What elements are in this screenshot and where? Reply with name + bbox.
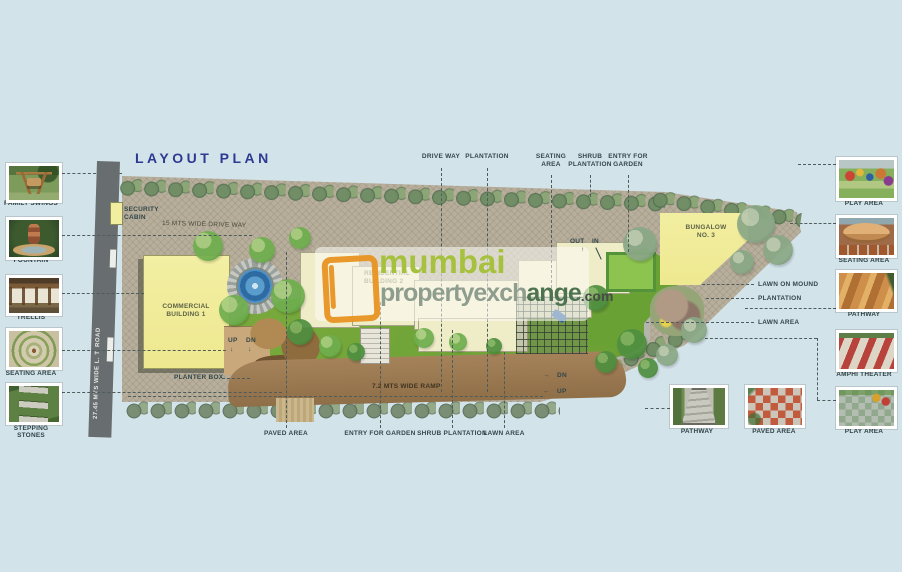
leader-line xyxy=(646,322,754,323)
seating-area-photo xyxy=(839,218,894,255)
residential-building-2 xyxy=(418,318,528,352)
thumbnail-pathway xyxy=(836,270,897,312)
tree xyxy=(763,235,793,265)
leader-line xyxy=(700,338,817,339)
thumbnail-label: PLAY AREA xyxy=(832,201,896,208)
leader-line xyxy=(128,396,543,397)
ramp-dn-label: DN xyxy=(246,337,256,345)
leader-line xyxy=(817,400,836,401)
thumbnail-seating-area-right xyxy=(836,215,897,258)
seating-area-photo xyxy=(9,331,59,367)
in-label: IN xyxy=(592,238,599,246)
tree xyxy=(730,250,754,274)
arrow-down-icon: ↓ xyxy=(248,346,252,354)
tree xyxy=(638,358,658,378)
leader-line xyxy=(504,352,505,428)
tree xyxy=(287,319,313,345)
leader-line xyxy=(62,293,144,294)
brand-word-mumbai: mumbai xyxy=(379,243,506,281)
thumbnail-seating-area xyxy=(6,328,62,370)
tree xyxy=(219,295,249,325)
thumbnail-label: PLAY AREA xyxy=(832,429,896,436)
tree xyxy=(414,328,434,348)
thumbnail-pathway-bottom xyxy=(670,385,728,428)
entrance-steps xyxy=(360,328,390,364)
tree xyxy=(486,338,502,354)
brand-word-part1: propertyexch xyxy=(380,279,526,307)
pathway-photo xyxy=(839,273,894,309)
thumbnail-label: AMPHI THEATER xyxy=(832,372,896,379)
brand-logo-icon xyxy=(321,255,380,324)
tree xyxy=(271,279,305,313)
play-area-photo xyxy=(839,160,894,198)
thumbnail-stepping-stones xyxy=(6,383,62,425)
page-title: LAYOUT PLAN xyxy=(135,150,272,166)
tree xyxy=(249,237,275,263)
leader-line xyxy=(702,284,754,285)
callout-plantation-right: PLANTATION xyxy=(758,295,801,303)
tree xyxy=(681,317,707,343)
road-gate-opening xyxy=(110,249,117,267)
thumbnail-fountain xyxy=(6,217,62,260)
callout-lawn-on-mound: LAWN ON MOUND xyxy=(758,281,818,289)
tree xyxy=(656,344,678,366)
fountain-photo xyxy=(9,220,59,257)
thumbnail-trellis xyxy=(6,275,62,316)
commercial-building-label: COMMERCIAL BUILDING 1 xyxy=(151,303,221,319)
tree xyxy=(319,335,341,357)
stepping-stones-photo xyxy=(9,386,59,422)
thumbnail-play-area xyxy=(836,157,897,201)
callout-lawn-area-right: LAWN AREA xyxy=(758,319,799,327)
amphi-theater-photo xyxy=(839,333,894,369)
thumbnail-label: STEPPING STONES xyxy=(0,426,62,439)
leader-line xyxy=(645,408,670,409)
ramp-dn-east-label: DN xyxy=(557,372,567,380)
paved-entry xyxy=(276,398,314,422)
planter-box-label: PLANTER BOX xyxy=(174,374,223,382)
leader-line xyxy=(62,350,226,351)
callout-entry-for-garden: ENTRY FOR GARDEN xyxy=(603,153,653,169)
ramp-up-east-label: UP xyxy=(557,388,567,396)
thumbnail-amphi-theater xyxy=(836,330,897,372)
brand-word-suffix: .com xyxy=(581,288,614,304)
brand-word-propertyexchange: propertyexchange.com xyxy=(380,279,613,308)
leader-line xyxy=(62,235,252,236)
leader-line xyxy=(706,298,754,299)
thumbnail-play-area-2 xyxy=(836,387,897,429)
leader-line xyxy=(798,164,836,165)
leader-line xyxy=(286,252,287,428)
thumbnail-label: PAVED AREA xyxy=(742,429,806,436)
leader-line xyxy=(222,378,250,379)
road-label: 27.45 MTS WIDE L. T. ROAD xyxy=(93,289,111,419)
trellis-photo xyxy=(9,278,59,313)
thumbnail-label: PATHWAY xyxy=(832,312,896,319)
leader-line xyxy=(452,330,453,428)
leader-line xyxy=(590,175,591,197)
callout-entry-for-garden-bottom: ENTRY FOR GARDEN xyxy=(340,430,420,438)
callout-plantation: PLANTATION xyxy=(459,153,515,161)
leader-line xyxy=(62,392,282,393)
arrow-right-icon: → xyxy=(543,372,550,380)
bungalow-label: BUNGALOW NO. 3 xyxy=(676,224,736,240)
tree xyxy=(289,227,311,249)
callout-lawn-area-bottom: LAWN AREA xyxy=(474,430,534,438)
tree xyxy=(617,329,647,359)
family-swings-photo xyxy=(9,166,59,200)
tree xyxy=(347,343,365,361)
play-area-photo xyxy=(839,390,894,426)
paved-area-photo xyxy=(748,388,802,425)
security-cabin xyxy=(110,202,123,225)
thumbnail-label: SEATING AREA xyxy=(0,371,62,378)
out-label: OUT xyxy=(570,238,584,246)
arrow-left-icon: ← xyxy=(543,388,550,396)
thumbnail-family-swings xyxy=(6,163,62,203)
arrow-down-icon: ↓ xyxy=(230,346,234,354)
ramp-up-label: UP xyxy=(228,337,238,345)
pathway-photo xyxy=(673,388,725,425)
leader-line xyxy=(745,308,836,309)
brand-word-part2: ange xyxy=(526,279,580,307)
watermark: mumbai propertyexchange.com xyxy=(315,247,589,321)
security-cabin-label: SECURITY CABIN xyxy=(124,206,159,222)
thumbnail-label: PATHWAY xyxy=(665,429,729,436)
callout-paved-area: PAVED AREA xyxy=(256,430,316,438)
leader-line xyxy=(817,338,818,400)
layout-plan-canvas: LAYOUT PLAN 27.45 MTS WIDE L. T. ROAD 15… xyxy=(0,0,902,572)
arrow-up-icon: ↑ xyxy=(581,246,585,254)
leader-line xyxy=(628,175,629,252)
tree xyxy=(595,351,617,373)
thumbnail-label: SEATING AREA xyxy=(832,258,896,265)
thumbnail-paved-area-bottom xyxy=(745,385,805,428)
